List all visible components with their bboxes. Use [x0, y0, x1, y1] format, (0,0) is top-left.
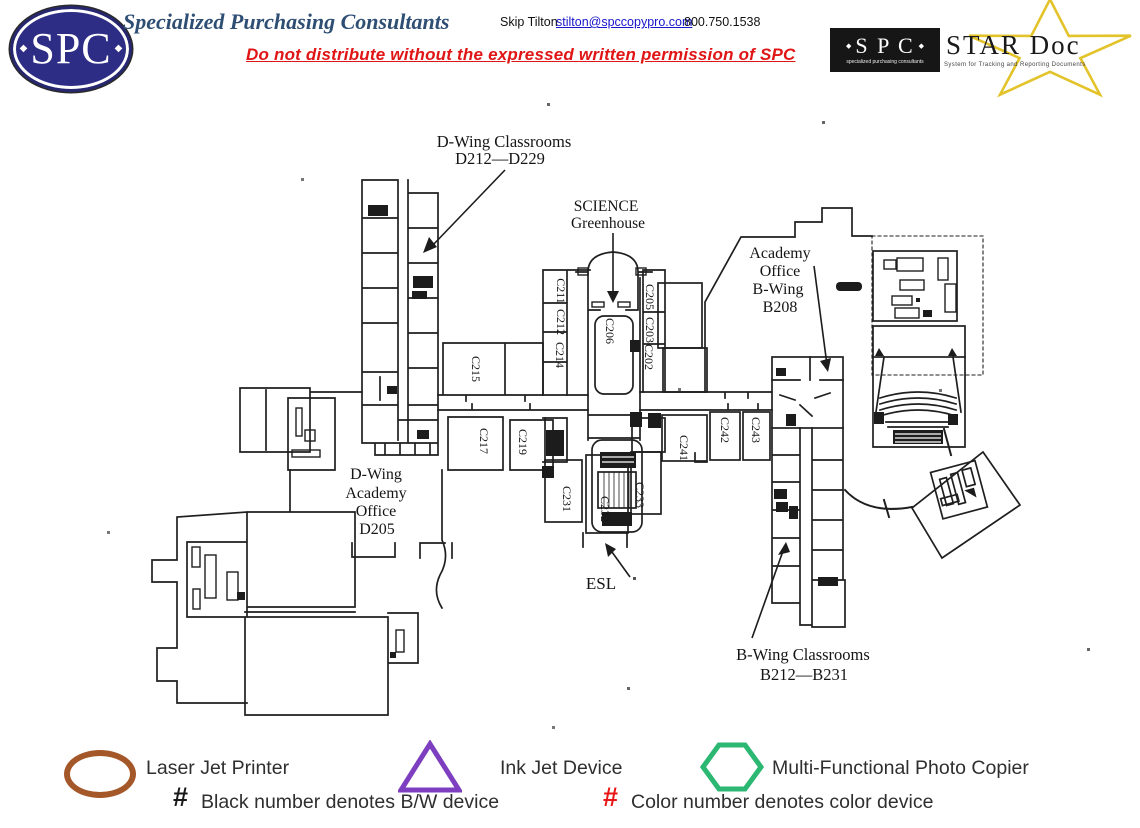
contact-phone: 800.750.1538	[684, 15, 760, 29]
dwing-academy-label-3: Office	[356, 503, 397, 520]
room-label-c214: C214	[553, 342, 567, 368]
bwing-classrooms-range: B212—B231	[760, 665, 848, 684]
bwing-classrooms-label: B-Wing Classrooms	[736, 645, 870, 664]
stardoc-diamond-icon: ◆	[919, 42, 924, 50]
room-label-c242: C242	[718, 417, 732, 443]
academy-office-label-1: Academy	[749, 245, 810, 262]
dwing-academy-label-1: D-Wing	[350, 466, 402, 483]
esl-label: ESL	[586, 574, 616, 593]
room-label-c219: C219	[516, 429, 530, 455]
contact-name: Skip Tilton	[500, 15, 558, 29]
logo-diamond-icon: ◆	[115, 44, 123, 54]
room-label-c231: C231	[560, 486, 574, 512]
room-label-c232: C232	[598, 496, 612, 522]
science-label: SCIENCE	[574, 198, 639, 215]
color-hash-symbol: #	[603, 782, 618, 813]
page: D-Wing Classrooms D212—D229 SCIENCE Gree…	[0, 0, 1140, 828]
academy-office-label-2: Office	[760, 263, 801, 280]
room-label-c233: C233	[633, 482, 647, 508]
furniture-marks	[192, 258, 956, 652]
academy-office-label-3: B-Wing	[753, 281, 804, 298]
legend-color-note: Color number denotes color device	[631, 791, 933, 814]
room-label-c202: C202	[642, 344, 656, 370]
stardoc-title: STAR Doc	[946, 30, 1081, 61]
logo-diamond-icon: ◆	[20, 44, 28, 54]
dwing-classrooms-range: D212—D229	[455, 149, 545, 168]
room-label-c206: C206	[603, 318, 617, 344]
legend-ink-jet-label: Ink Jet Device	[500, 757, 622, 780]
disclaimer-text: Do not distribute without the expressed …	[246, 45, 796, 65]
ink-jet-device-icon	[398, 740, 462, 794]
stardoc-spc-text: S P C	[855, 35, 914, 57]
room-label-c205: C205	[643, 284, 657, 310]
room-label-c241: C241	[677, 435, 691, 461]
stardoc-spc-box: ◆ S P C ◆ specialized purchasing consult…	[830, 28, 940, 72]
floor-plan: D-Wing Classrooms D212—D229 SCIENCE Gree…	[0, 0, 1140, 828]
room-label-c212: C212	[554, 309, 568, 335]
room-label-c203: C203	[643, 317, 657, 343]
stardoc-subtitle: System for Tracking and Reporting Docume…	[944, 62, 1086, 68]
room-label-c243: C243	[749, 417, 763, 443]
photo-copier-icon	[700, 740, 764, 794]
laser-jet-printer-icon	[64, 750, 136, 798]
logo-text: SPC	[30, 27, 111, 71]
stardoc-diamond-icon: ◆	[846, 42, 851, 50]
room-label-c211: C211	[554, 278, 568, 304]
room-label-c217: C217	[477, 428, 491, 454]
dwing-academy-label-2: Academy	[345, 485, 406, 502]
stardoc-spc-subtext: specialized purchasing consultants	[846, 59, 923, 65]
dwing-academy-label-4: D205	[359, 521, 395, 538]
greenhouse-label: Greenhouse	[571, 215, 645, 232]
spc-logo: ◆ SPC ◆	[10, 6, 132, 92]
legend-laser-jet-label: Laser Jet Printer	[146, 757, 289, 780]
room-label-c215: C215	[469, 356, 483, 382]
legend-bw-note: Black number denotes B/W device	[201, 791, 499, 814]
legend-copier-label: Multi-Functional Photo Copier	[772, 757, 1029, 780]
contact-email-link[interactable]: stilton@spccopypro.com	[556, 15, 692, 29]
company-name: Specialized Purchasing Consultants	[123, 9, 449, 35]
scan-marks	[107, 103, 1090, 729]
bw-hash-symbol: #	[173, 782, 188, 813]
map-labels: D-Wing Classrooms D212—D229 SCIENCE Gree…	[345, 132, 869, 684]
label-arrows	[423, 170, 831, 638]
academy-office-label-4: B208	[763, 299, 798, 316]
